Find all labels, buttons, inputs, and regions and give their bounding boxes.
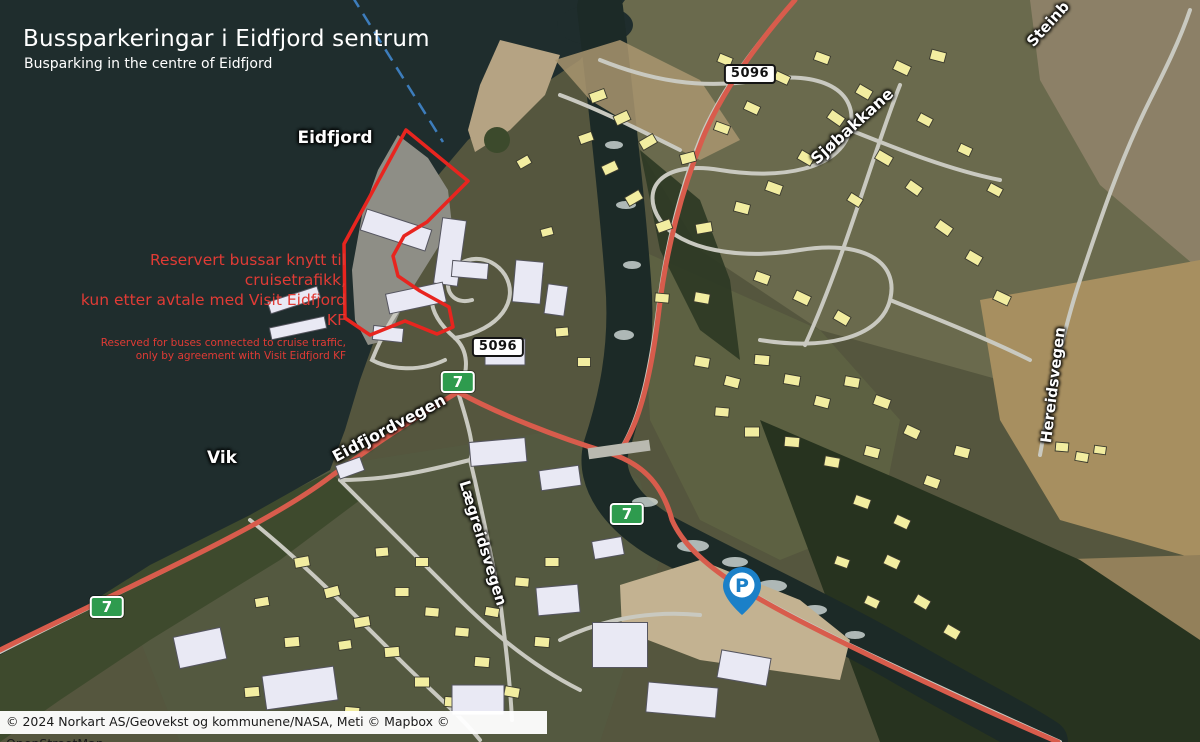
parking-icon: P	[735, 575, 749, 597]
road-sign-5096-north: 5096	[724, 64, 776, 84]
place-label-eidfjord: Eidfjord	[297, 128, 372, 148]
header: Bussparkeringar i Eidfjord sentrum Buspa…	[23, 26, 430, 72]
route-shield-7-west: 7	[90, 596, 124, 618]
parking-marker-pin[interactable]: P	[722, 566, 762, 616]
reserved-note-no-line2: kun etter avtale med Visit Eidfjord KF	[58, 290, 346, 330]
route-shield-7-bridge: 7	[610, 503, 644, 525]
place-label-vik: Vik	[207, 448, 237, 468]
reserved-note: Reservert bussar knytt til cruisetrafikk…	[58, 250, 346, 363]
road-sign-5096-centre: 5096	[472, 337, 524, 357]
page-subtitle: Busparking in the centre of Eidfjord	[24, 56, 430, 72]
page-title: Bussparkeringar i Eidfjord sentrum	[23, 26, 430, 52]
map-screenshot: Bussparkeringar i Eidfjord sentrum Buspa…	[0, 0, 1200, 742]
reserved-note-en-line1: Reserved for buses connected to cruise t…	[58, 337, 346, 350]
map-canvas[interactable]	[0, 0, 1200, 742]
route-shield-7-harbour: 7	[441, 371, 475, 393]
reserved-note-en-line2: only by agreement with Visit Eidfjord KF	[58, 350, 346, 363]
map-attribution: © 2024 Norkart AS/Geovekst og kommunene/…	[0, 711, 547, 734]
reserved-note-no-line1: Reservert bussar knytt til cruisetrafikk…	[58, 250, 346, 290]
